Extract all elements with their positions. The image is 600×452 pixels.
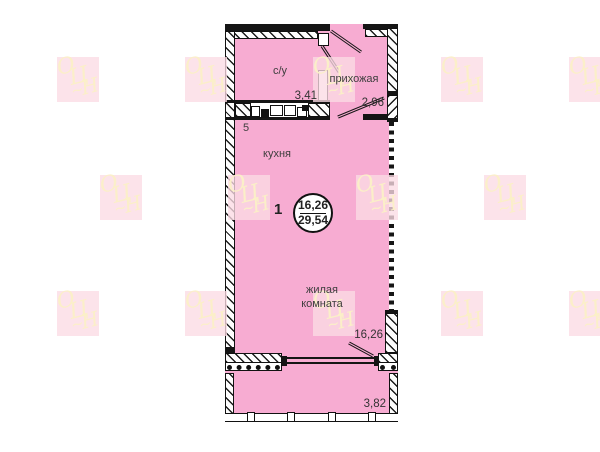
hallway-area: 2,96 bbox=[350, 96, 384, 111]
apartment-number: 1 bbox=[274, 200, 290, 220]
railing-post bbox=[247, 412, 255, 422]
total-area-value: 29,54 bbox=[298, 214, 328, 227]
sill-insulation-dots bbox=[227, 365, 280, 370]
window-pane-line bbox=[287, 362, 374, 364]
bathroom-area: 3,41 bbox=[283, 89, 317, 104]
kitchen-label: кухня bbox=[252, 147, 302, 161]
floor-plan-image: ОЦН~ОЦН~ОЦН~ОЦН~ОЦН~ОЦН~ОЦН~ОЦН~ОЦН~ОЦН~… bbox=[0, 0, 600, 452]
railing-post bbox=[328, 412, 336, 422]
balcony-wall-left bbox=[225, 373, 234, 418]
fixture-icon bbox=[261, 109, 269, 118]
fixture-icon bbox=[251, 106, 260, 117]
wall-right-pier bbox=[385, 313, 398, 353]
fixture-icon bbox=[302, 105, 308, 111]
fixture-icon bbox=[270, 105, 283, 116]
window-sill-left bbox=[225, 353, 282, 371]
window-pane-line bbox=[287, 357, 374, 359]
wall-top-left bbox=[225, 24, 330, 31]
hallway-label: прихожая bbox=[322, 72, 386, 86]
outside-patch bbox=[394, 122, 398, 312]
fixture-icon bbox=[284, 105, 296, 116]
bathroom-label: с/у bbox=[258, 64, 302, 78]
bathroom-wall-hatch-left bbox=[235, 103, 251, 117]
living-room-area: 16,26 bbox=[343, 328, 383, 343]
bathroom-wall-hatch-right bbox=[308, 103, 330, 117]
railing-post bbox=[287, 412, 295, 422]
door-frame-post bbox=[318, 33, 329, 46]
balcony-wall-right bbox=[389, 373, 398, 418]
wall-right-upper bbox=[387, 28, 398, 93]
window-end-cap-right bbox=[374, 356, 379, 366]
area-circle: 16,26 29,54 bbox=[293, 193, 333, 233]
kitchen-number: 5 bbox=[243, 121, 259, 135]
balcony-area: 3,82 bbox=[348, 397, 386, 412]
living-room-label: жилая комната bbox=[295, 283, 349, 312]
wall-right-mid bbox=[387, 95, 398, 119]
bathroom-wall-bottom-line bbox=[225, 117, 330, 120]
hallway-bottom-wall bbox=[363, 114, 387, 120]
wall-left bbox=[225, 31, 235, 353]
window-sill-right bbox=[378, 353, 398, 371]
sill-insulation-dots bbox=[380, 365, 396, 370]
railing-post bbox=[368, 412, 376, 422]
wall-top-left-insulation bbox=[228, 31, 318, 39]
sill-hatch bbox=[226, 354, 281, 363]
living-area-value: 16,26 bbox=[298, 199, 328, 212]
window-right-glazing bbox=[389, 122, 394, 312]
sill-hatch bbox=[379, 354, 397, 363]
